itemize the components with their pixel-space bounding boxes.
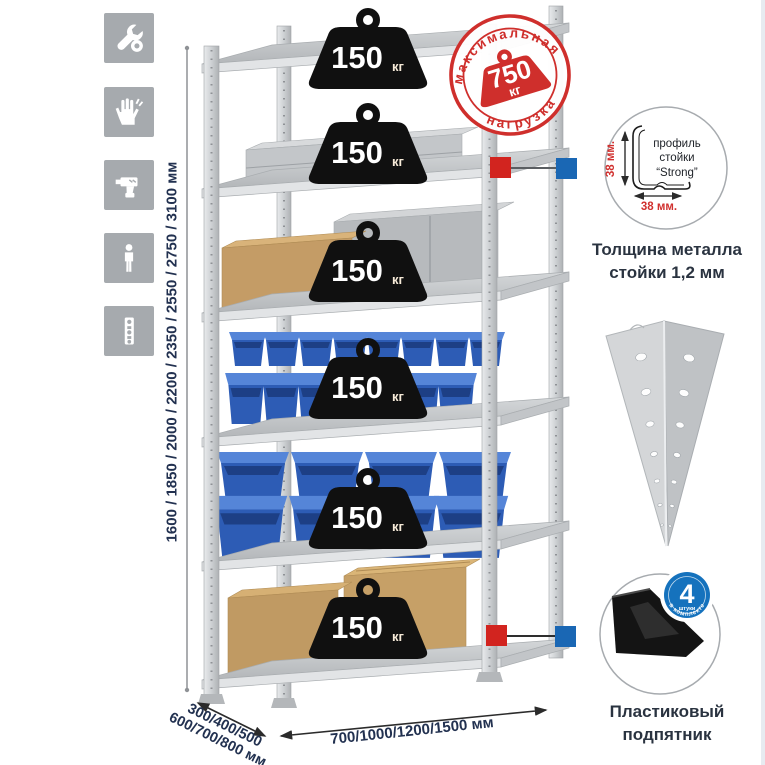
profile-caption-line2: стойки 1,2 мм [572, 261, 762, 284]
svg-text:4: 4 [679, 579, 694, 609]
svg-text:кг: кг [392, 389, 405, 404]
infographic-canvas: 150кг 150кг 150кг 150кг 150кг 150кг [0, 0, 765, 765]
svg-text:150: 150 [331, 610, 383, 645]
upright-profile-image [606, 321, 724, 546]
svg-text:кг: кг [392, 519, 405, 534]
scene-illustration: 150кг 150кг 150кг 150кг 150кг 150кг [0, 0, 765, 765]
included-count-badge: 4 штуки в комплекте [660, 568, 714, 622]
height-dimensions-label: 1600 / 1850 / 2000 / 2200 / 2350 / 2550 … [164, 162, 181, 543]
svg-text:кг: кг [392, 154, 405, 169]
shelf-weight-2: 150кг [309, 107, 427, 185]
foot-caption: Пластиковый подпятник [572, 700, 762, 747]
svg-text:“Strong”: “Strong” [656, 167, 698, 179]
page-edge-strip [761, 0, 765, 765]
svg-text:38 мм.: 38 мм. [605, 141, 617, 177]
svg-text:кг: кг [392, 272, 405, 287]
svg-text:профиль: профиль [653, 138, 701, 150]
profile-caption: Толщина металла стойки 1,2 мм [572, 238, 762, 285]
svg-text:150: 150 [331, 135, 383, 170]
height-dimension-line [185, 46, 189, 692]
shelf-weight-1: 150кг [309, 12, 427, 90]
svg-text:кг: кг [392, 59, 405, 74]
svg-text:150: 150 [331, 370, 383, 405]
svg-text:кг: кг [392, 629, 405, 644]
svg-text:стойки: стойки [659, 152, 694, 164]
svg-text:150: 150 [331, 500, 383, 535]
foot-caption-line2: подпятник [572, 723, 762, 746]
svg-text:150: 150 [331, 253, 383, 288]
profile-detail-circle: 38 мм. 38 мм. профиль стойки “Strong” [605, 107, 727, 229]
profile-caption-line1: Толщина металла [572, 238, 762, 261]
foot-detail-circle: 4 штуки в комплекте [600, 568, 720, 694]
svg-text:38 мм.: 38 мм. [641, 201, 677, 213]
svg-text:150: 150 [331, 40, 383, 75]
foot-caption-line1: Пластиковый [572, 700, 762, 723]
